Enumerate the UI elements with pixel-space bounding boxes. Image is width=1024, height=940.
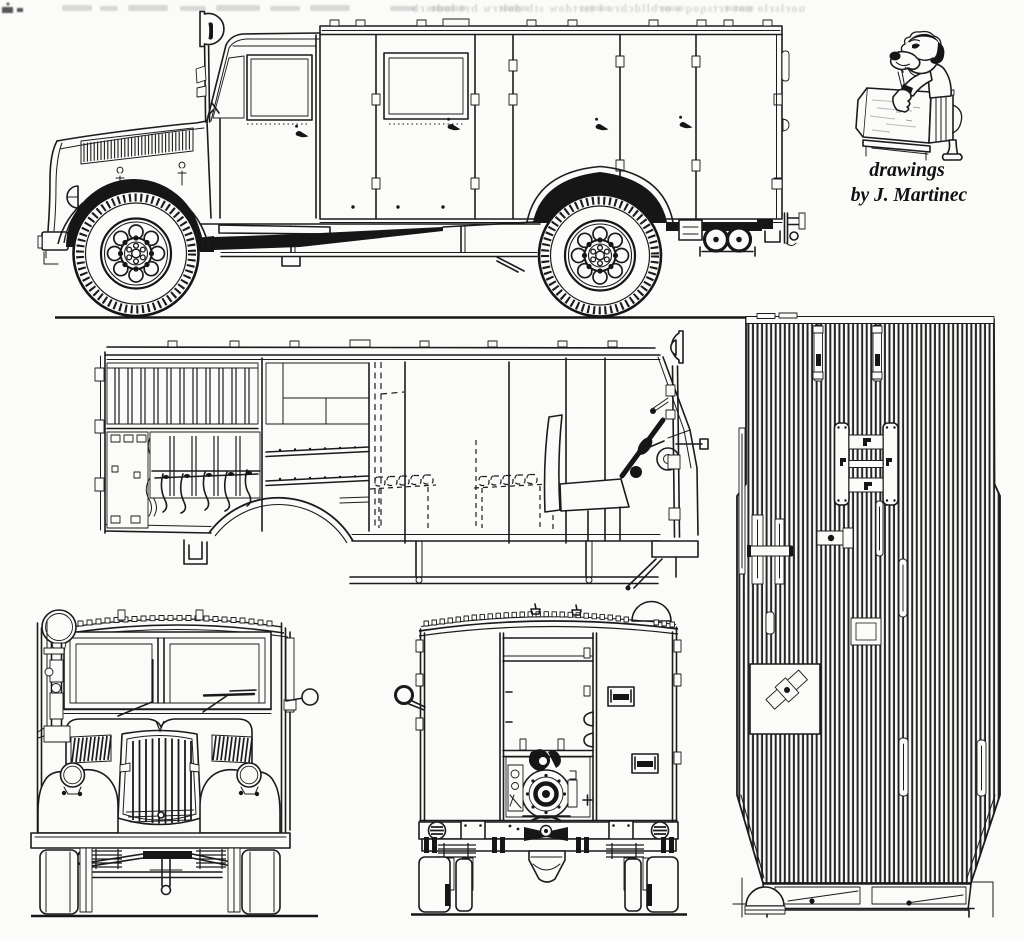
svg-text:drawings: drawings bbox=[869, 159, 945, 181]
svg-text:by J. Martinec: by J. Martinec bbox=[851, 185, 968, 206]
